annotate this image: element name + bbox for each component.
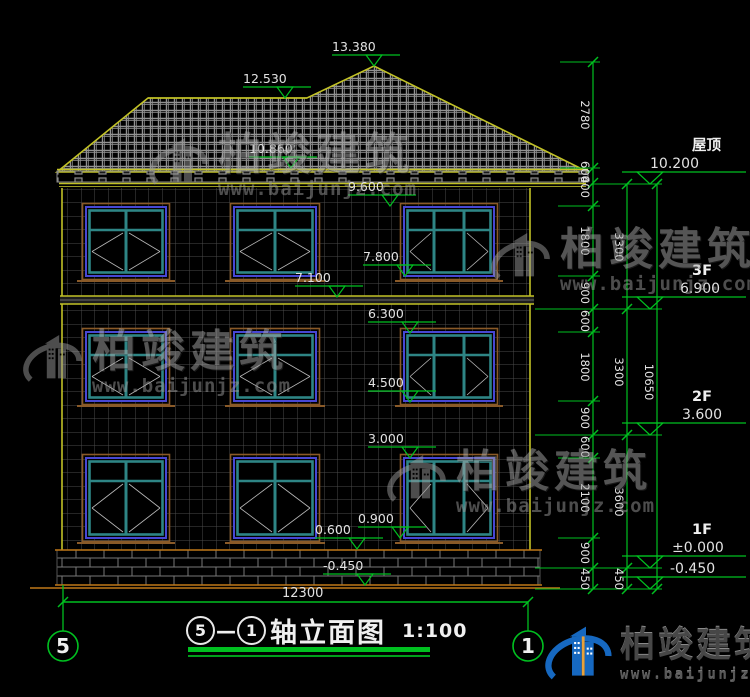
dimension-value: 900 [578, 542, 592, 564]
elevation-marker-label: 12.530 [243, 71, 287, 86]
window [77, 204, 175, 282]
brand-logo: 柏竣建筑 www.baijunjz.com [544, 620, 750, 692]
elevation-sheet: 2780600400180090060018009006002100900450… [0, 0, 750, 697]
dimension-value: 450 [612, 568, 626, 590]
watermark: 柏竣建筑 www.baijunjz.com [386, 450, 655, 517]
brand-name: 柏竣建筑 [620, 629, 750, 664]
floor-level-value: 3.600 [682, 407, 722, 423]
title-underline [188, 647, 430, 652]
drawing-title: 5 — 1 轴立面图 1:100 [186, 611, 467, 650]
drawing-title-text: 轴立面图 [270, 611, 386, 650]
title-underline-thin [188, 655, 430, 657]
floor-level-name: 屋顶 [692, 137, 721, 154]
brand-logo-icon [544, 620, 614, 692]
elevation-marker-label: -0.450 [323, 558, 363, 573]
elevation-marker: 12.530 [243, 71, 311, 98]
dimension-value: 900 [578, 407, 592, 429]
watermark-url: www.baijunjz.com [560, 273, 750, 295]
dimension-value: 400 [578, 176, 592, 198]
plinth [30, 550, 560, 588]
watermark-url: www.baijunjz.com [456, 495, 655, 517]
axis-number: 5 [56, 634, 70, 658]
elevation-marker: 13.380 [332, 39, 400, 66]
floor-level-value: -0.450 [670, 561, 715, 577]
floor-level-name: 2F [692, 389, 712, 405]
floor-level-marker: 10.200屋顶 [622, 137, 746, 184]
axis-bubble: 1 [513, 602, 543, 661]
watermark-url: www.baijunjz.com [92, 375, 291, 397]
floor-level-name: 1F [692, 522, 712, 538]
dimension-value: 1800 [578, 352, 592, 381]
watermark: 柏竣建筑 www.baijunjz.com [22, 330, 291, 397]
watermark-brand: 柏竣建筑 [560, 228, 750, 272]
elevation-marker-label: 0.600 [315, 522, 351, 537]
window [77, 455, 175, 544]
drawing-scale: 1:100 [402, 620, 467, 642]
watermark: 柏竣建筑 www.baijunjz.com [490, 228, 750, 295]
title-axis-separator: — [216, 619, 236, 643]
elevation-marker-label: 3.000 [368, 431, 404, 446]
axis-bubble: 5 [48, 585, 78, 661]
elevation-marker-label: 7.800 [363, 249, 399, 264]
floor-level-value: ±0.000 [672, 540, 724, 556]
axis-number: 1 [521, 634, 535, 658]
dimension-value: 10650 [642, 364, 656, 401]
window [395, 329, 503, 407]
floor-band [60, 296, 534, 304]
elevation-marker-label: 4.500 [368, 375, 404, 390]
dimension-value: 3300 [612, 357, 626, 386]
title-axis-end-bubble: 1 [237, 616, 266, 645]
watermark-brand: 柏竣建筑 [218, 133, 417, 177]
watermark-url: www.baijunjz.com [218, 178, 417, 200]
elevation-marker-label: 6.300 [368, 306, 404, 321]
watermark: 柏竣建筑 www.baijunjz.com [148, 133, 417, 200]
brand-url: www.baijunjz.com [620, 667, 750, 683]
title-axis-start-bubble: 5 [186, 616, 215, 645]
floor-level-value: 10.200 [650, 156, 699, 172]
watermark-brand: 柏竣建筑 [92, 330, 291, 374]
dimension-value: 2780 [578, 100, 592, 129]
overall-dimension-value: 12300 [282, 586, 323, 601]
dimension-value: 450 [578, 568, 592, 590]
floor-level-marker: -0.450 [622, 561, 746, 589]
dimension-value: 600 [578, 310, 592, 332]
floor-level-marker: 3.6002F [622, 389, 746, 435]
watermark-brand: 柏竣建筑 [456, 450, 655, 494]
window [395, 204, 503, 282]
elevation-marker-label: 7.100 [295, 270, 331, 285]
elevation-marker-label: 13.380 [332, 39, 376, 54]
window [225, 455, 325, 544]
